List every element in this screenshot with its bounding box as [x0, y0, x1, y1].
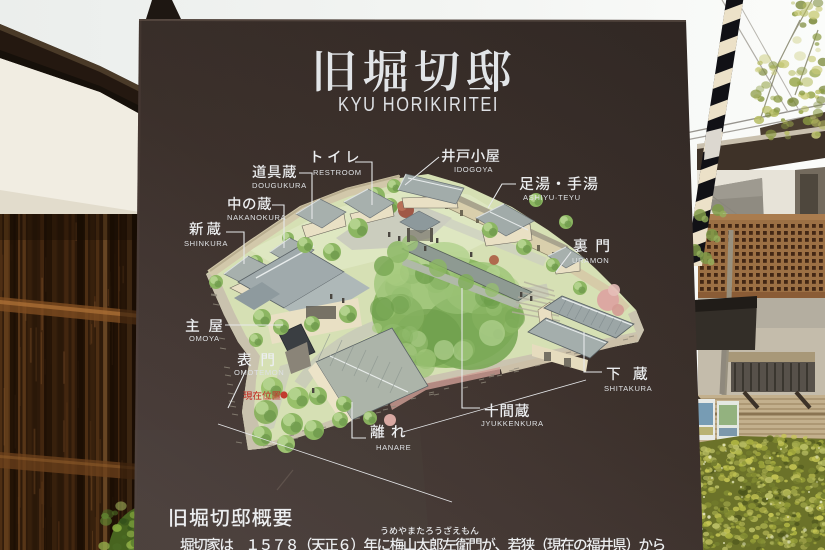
svg-text:OMOTEMON: OMOTEMON: [234, 368, 284, 377]
svg-text:IDOGOYA: IDOGOYA: [454, 165, 493, 174]
svg-text:URAMON: URAMON: [572, 256, 609, 265]
svg-text:ASHIYU·TEYU: ASHIYU·TEYU: [523, 193, 581, 202]
svg-text:JYUKKENKURA: JYUKKENKURA: [481, 419, 544, 428]
svg-text:NAKANOKURA: NAKANOKURA: [227, 213, 287, 222]
svg-text:RESTROOM: RESTROOM: [313, 168, 362, 177]
svg-text:KYU HORIKIRITEI: KYU HORIKIRITEI: [338, 92, 499, 115]
svg-text:SHINKURA: SHINKURA: [184, 239, 228, 248]
svg-text:HANARE: HANARE: [376, 443, 411, 452]
svg-text:OMOYA: OMOYA: [189, 334, 220, 343]
svg-text:DOUGUKURA: DOUGUKURA: [252, 181, 307, 190]
svg-text:SHITAKURA: SHITAKURA: [604, 384, 653, 393]
